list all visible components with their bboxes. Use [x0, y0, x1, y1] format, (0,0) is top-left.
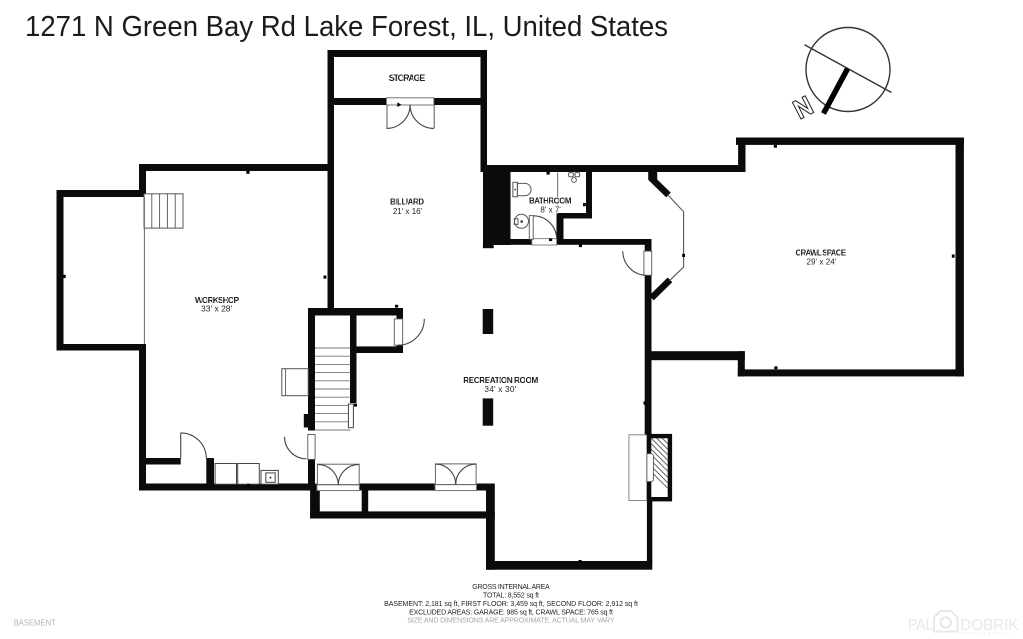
svg-text:BILLIARD: BILLIARD — [390, 198, 424, 207]
svg-text:PHOTOGRAPHY: PHOTOGRAPHY — [959, 631, 1010, 636]
svg-text:1271 N Green Bay Rd Lake Fores: 1271 N Green Bay Rd Lake Forest, IL, Uni… — [25, 11, 668, 43]
svg-text:PAL: PAL — [908, 617, 933, 634]
svg-text:CRAWL SPACE: CRAWL SPACE — [796, 248, 847, 257]
svg-text:SIZE AND DIMENSIONS ARE APPROX: SIZE AND DIMENSIONS ARE APPROXIMATE, ACT… — [407, 618, 615, 625]
svg-text:GROSS INTERNAL AREA: GROSS INTERNAL AREA — [472, 584, 550, 591]
svg-text:EXCLUDED AREAS: GARAGE: 985 sq: EXCLUDED AREAS: GARAGE: 985 sq ft, CRAWL… — [409, 609, 613, 616]
svg-text:BASEMENT: 2,181 sq ft, FIRST F: BASEMENT: 2,181 sq ft, FIRST FLOOR: 3,45… — [384, 601, 638, 608]
svg-text:BATHROOM: BATHROOM — [529, 197, 572, 206]
svg-text:21' x 16': 21' x 16' — [393, 207, 423, 216]
svg-text:STORAGE: STORAGE — [389, 73, 426, 83]
svg-text:TOTAL: 8,552 sq ft: TOTAL: 8,552 sq ft — [483, 593, 539, 600]
svg-text:33' x 28': 33' x 28' — [201, 304, 233, 314]
svg-text:34' x 30': 34' x 30' — [484, 384, 516, 394]
svg-text:BASEMENT: BASEMENT — [14, 619, 56, 628]
svg-text:8' x 7': 8' x 7' — [540, 206, 561, 215]
svg-text:29' x 24': 29' x 24' — [807, 258, 837, 267]
